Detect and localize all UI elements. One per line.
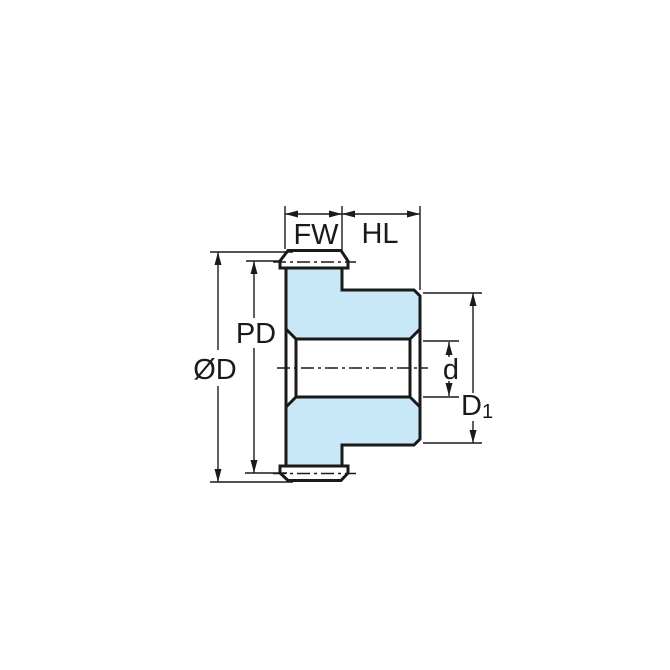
- hub-diameter-label: D1: [461, 390, 493, 423]
- gear-upper-body: [286, 268, 420, 339]
- pd-dimension: PD: [236, 261, 287, 473]
- fw-dimension: FW: [285, 206, 342, 251]
- hub-diameter-label-subscript: 1: [482, 401, 493, 423]
- od-label: ØD: [193, 354, 237, 386]
- hl-label: HL: [361, 218, 398, 250]
- gear-body: [280, 251, 420, 481]
- gear-lower-body: [286, 397, 420, 466]
- bore-dimension: d: [423, 341, 459, 397]
- gear-tooth-top: [280, 251, 348, 269]
- hub-diameter-label-main: D: [461, 390, 482, 422]
- pd-label: PD: [236, 318, 276, 350]
- fw-label: FW: [293, 219, 339, 251]
- gear-technical-drawing: FW HL ØD PD d D1: [0, 0, 670, 670]
- bore-label: d: [443, 354, 459, 386]
- od-dimension: ØD: [193, 252, 293, 482]
- hl-dimension: HL: [342, 206, 420, 290]
